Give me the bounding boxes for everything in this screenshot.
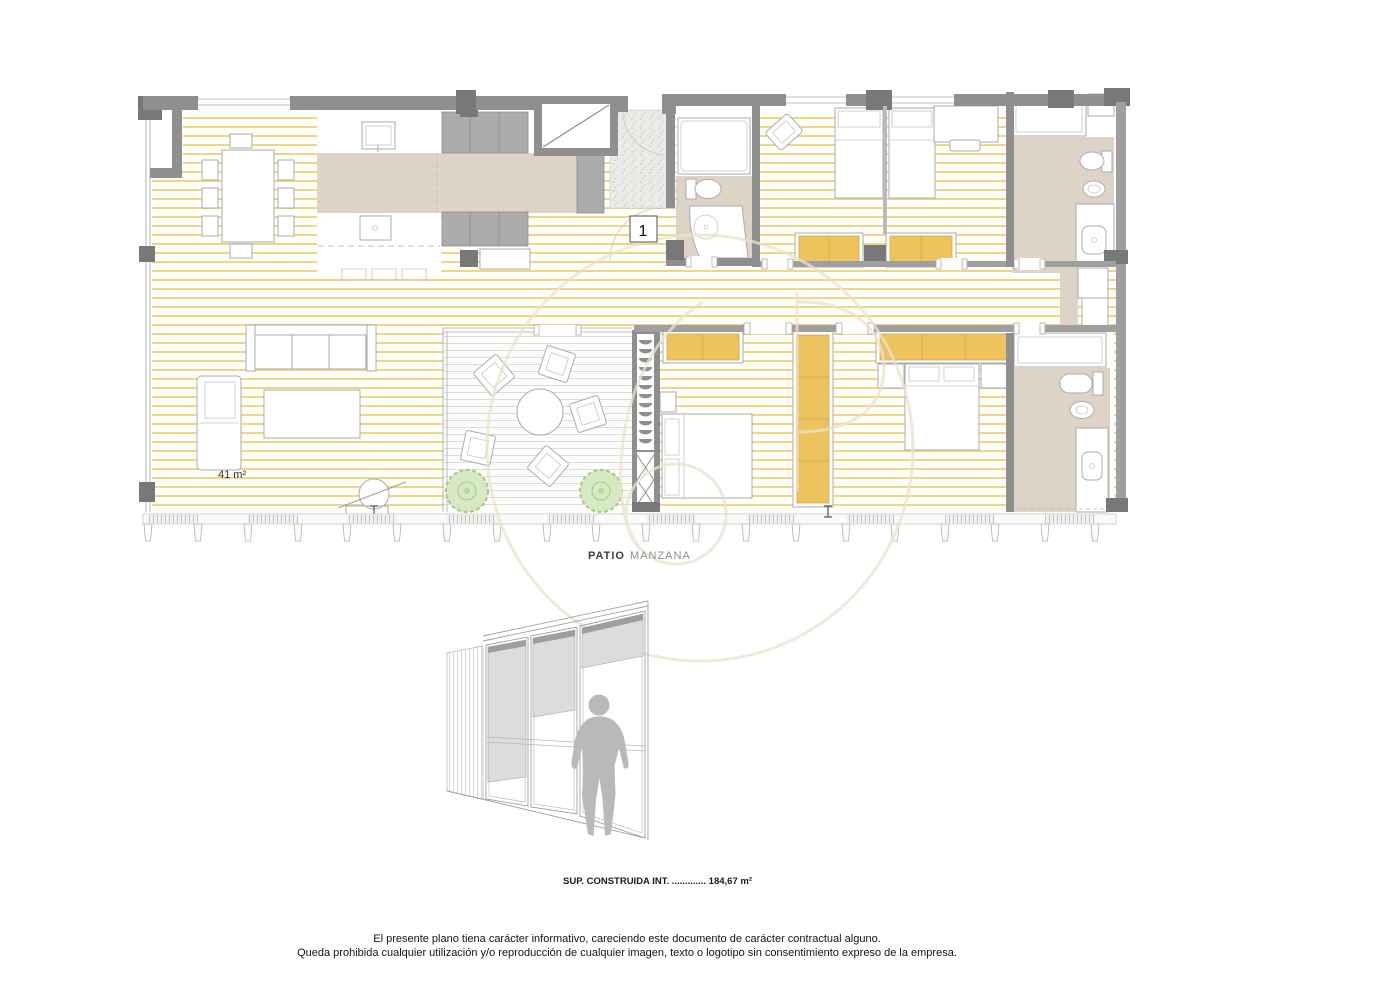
desk <box>934 106 998 142</box>
annotations: SUP. CONSTRUIDA INT. ............. 184,6… <box>297 876 957 959</box>
built-area-label: SUP. CONSTRUIDA INT. ............. 184,6… <box>563 876 752 887</box>
facade-mullions <box>144 524 1099 541</box>
patio-label-bold: PATIO <box>588 550 625 562</box>
vanity <box>1076 428 1108 512</box>
disclaimer-line-1: El presente plano tiena carácter informa… <box>373 933 881 945</box>
bidet <box>1070 402 1094 419</box>
bed <box>889 108 935 198</box>
toilet <box>695 180 721 199</box>
sofa <box>255 335 292 369</box>
dining-table <box>222 150 274 242</box>
bed <box>905 364 979 450</box>
terrace-tree <box>446 470 488 512</box>
kitchen-counter <box>480 249 530 269</box>
architectural-drawing: 1 41 m² PATIO MANZANA SUP. CONSTRUIDA IN… <box>0 0 1400 990</box>
wardrobe <box>880 334 1008 360</box>
toilet <box>1060 374 1092 393</box>
coffee-table <box>264 390 360 438</box>
entry-floor <box>610 110 668 208</box>
wardrobe-middle <box>793 331 833 507</box>
patio-label-light: MANZANA <box>630 550 691 562</box>
floor-plan-page: 1 41 m² PATIO MANZANA SUP. CONSTRUIDA IN… <box>0 0 1400 990</box>
kitchen-island <box>317 153 577 213</box>
nightstand <box>981 364 1007 388</box>
bed <box>835 108 883 198</box>
terrace-table <box>517 389 563 435</box>
kitchen-tall-cabinet <box>577 153 604 213</box>
terrace-tree <box>580 470 622 512</box>
room-number: 1 <box>639 223 648 240</box>
nightstand <box>660 392 676 412</box>
bathroom-top-right <box>1010 92 1116 267</box>
door-elevation-drawing <box>447 601 648 840</box>
desk-chair <box>950 140 980 151</box>
bidet <box>1083 181 1105 197</box>
kitchen-cabinet-bottom <box>442 212 528 246</box>
roller-blind-2 <box>533 630 575 717</box>
bed <box>662 414 752 498</box>
toilet <box>1080 152 1104 170</box>
bathroom-bottom-right <box>1012 331 1114 512</box>
bathroom-entry <box>676 110 754 268</box>
roller-blind-1 <box>488 640 526 782</box>
living-area-label: 41 m² <box>218 469 246 481</box>
vanity <box>690 206 748 258</box>
terrace <box>443 325 632 512</box>
kitchen-cabinet-top <box>442 112 528 153</box>
disclaimer-line-2: Queda prohibida cualquier utilización y/… <box>297 947 957 959</box>
shelf <box>1014 333 1106 367</box>
hatched-panel <box>447 646 483 799</box>
